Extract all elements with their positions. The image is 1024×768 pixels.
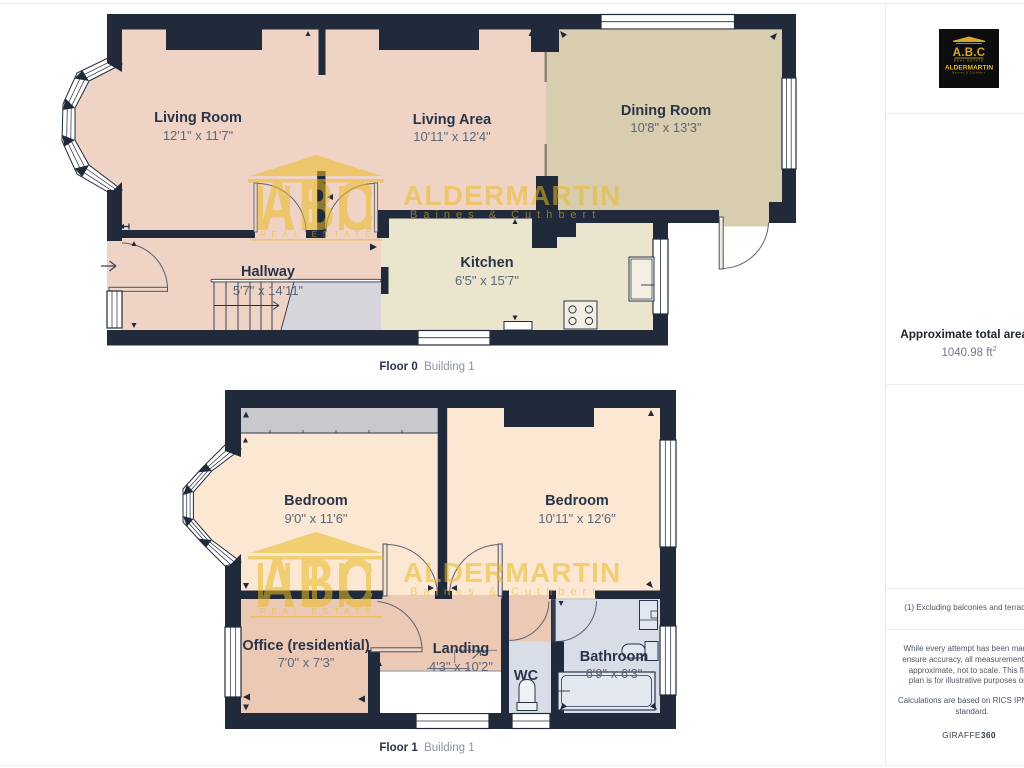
svg-text:Dining Room: Dining Room	[621, 103, 711, 119]
svg-text:Hallway: Hallway	[241, 264, 295, 280]
svg-text:4'3" x 10'2": 4'3" x 10'2"	[429, 659, 493, 674]
svg-text:Kitchen: Kitchen	[460, 255, 513, 271]
svg-text:Living Room: Living Room	[154, 110, 242, 126]
svg-text:10'11" x 12'4": 10'11" x 12'4"	[413, 129, 491, 144]
svg-text:REAL ESTATE: REAL ESTATE	[954, 58, 984, 62]
svg-text:6'5" x 15'7": 6'5" x 15'7"	[455, 273, 519, 288]
svg-text:Bedroom: Bedroom	[284, 493, 348, 509]
svg-text:Baines & Cuthbert: Baines & Cuthbert	[953, 71, 986, 75]
svg-text:Landing: Landing	[433, 641, 489, 657]
svg-text:9'0" x 11'6": 9'0" x 11'6"	[284, 511, 347, 526]
svg-text:7'0" x 7'3": 7'0" x 7'3"	[278, 655, 335, 670]
svg-text:Bedroom: Bedroom	[545, 493, 609, 509]
svg-text:WC: WC	[514, 668, 539, 684]
svg-text:Office (residential): Office (residential)	[242, 638, 369, 654]
svg-text:10'11" x 12'6": 10'11" x 12'6"	[538, 511, 616, 526]
svg-text:12'1" x 11'7": 12'1" x 11'7"	[163, 128, 234, 143]
svg-text:ALDERMARTIN: ALDERMARTIN	[945, 65, 994, 72]
svg-text:Bathroom: Bathroom	[580, 649, 648, 665]
svg-text:6'9" x 6'3": 6'9" x 6'3"	[586, 666, 643, 681]
svg-text:Living Area: Living Area	[413, 112, 492, 128]
svg-text:10'8" x 13'3": 10'8" x 13'3"	[630, 120, 702, 135]
svg-text:5'7" x 14'11": 5'7" x 14'11"	[233, 283, 304, 298]
svg-text:A.B.C: A.B.C	[953, 47, 986, 59]
